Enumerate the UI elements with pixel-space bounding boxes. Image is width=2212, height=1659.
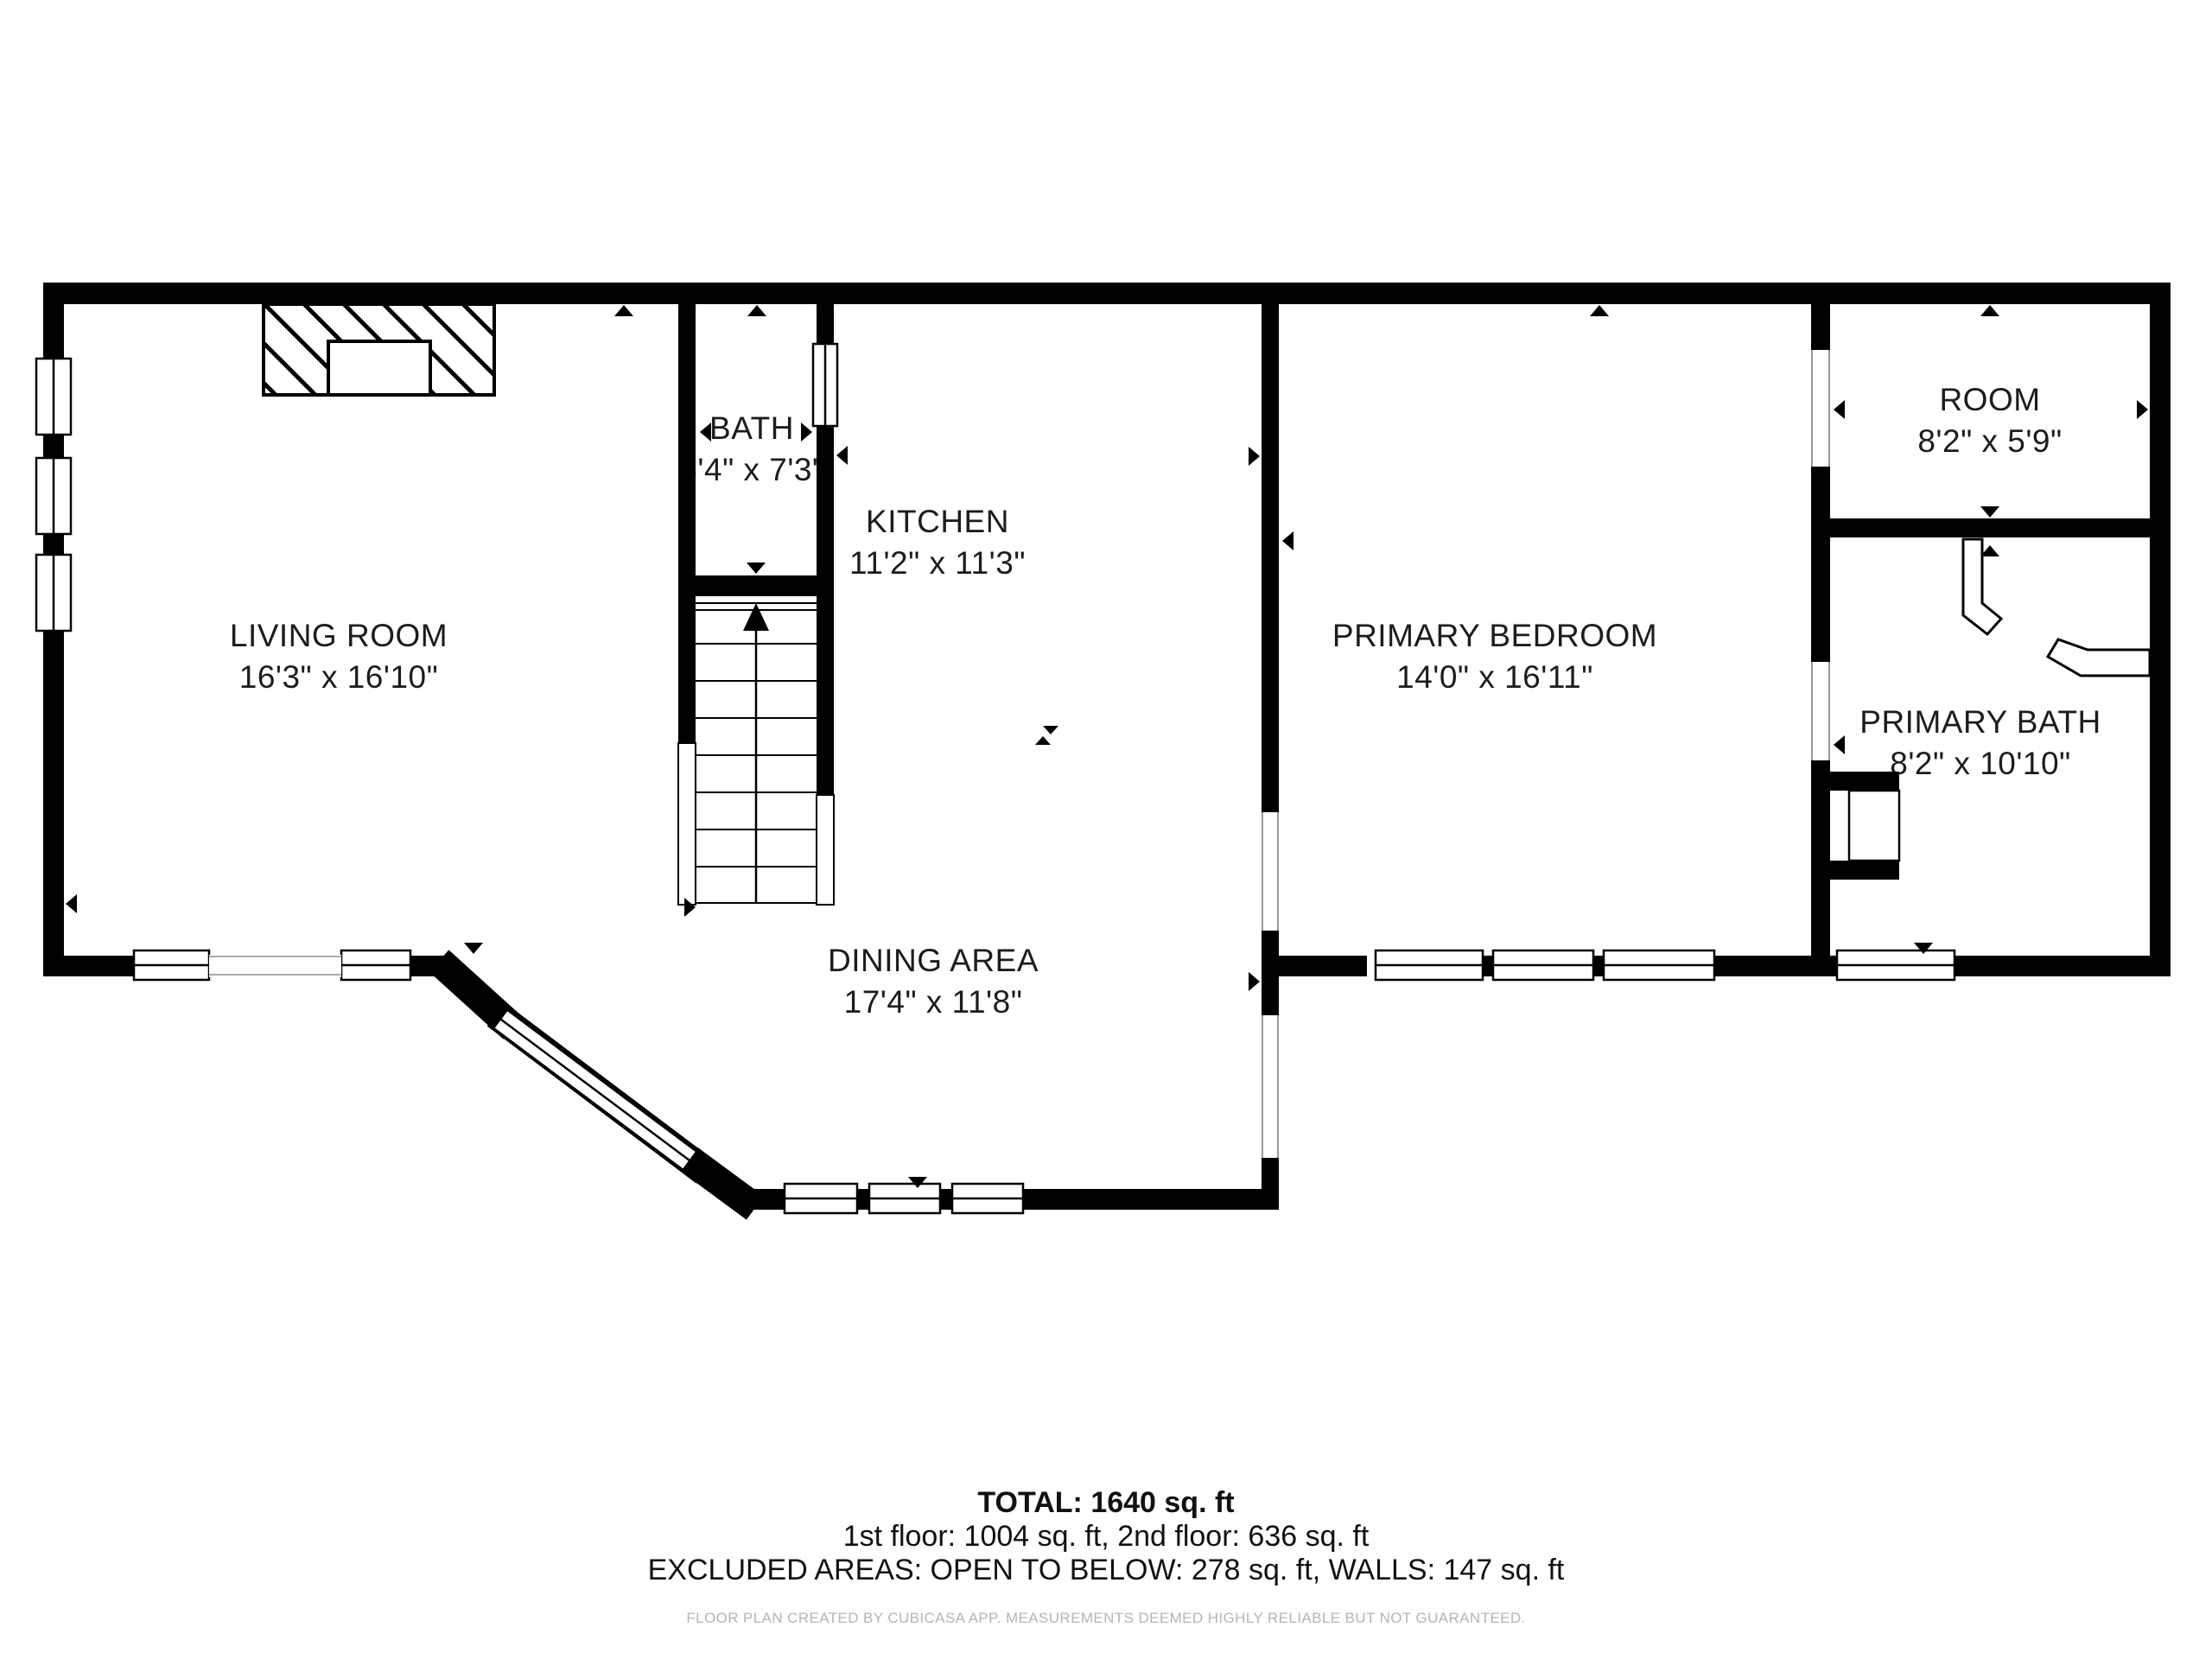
arrow-up-icon: [1980, 545, 1999, 556]
door-direction-markers: [66, 305, 2148, 1188]
arrow-right-icon: [1249, 447, 1260, 466]
arrow-down-icon: [464, 943, 483, 954]
arrow-down-icon: [1043, 726, 1058, 734]
floor-plan-canvas: LIVING ROOM 16'3" x 16'10" BATH 3'4" x 7…: [0, 0, 2212, 1659]
door-leaf-icon: [2048, 639, 2150, 676]
room-label-bath: BATH 3'4" x 7'3": [679, 408, 823, 491]
room-label-primary-bedroom: PRIMARY BEDROOM 14'0" x 16'11": [1332, 615, 1657, 698]
room-dims: 8'2" x 10'10": [1859, 743, 2101, 785]
room-dims: 11'2" x 11'3": [849, 543, 1026, 584]
bay-window-wall: [439, 961, 755, 1208]
arrow-down-icon: [747, 563, 766, 574]
fireplace: [264, 304, 494, 395]
window: [1837, 950, 1955, 980]
arrow-down-icon: [908, 1177, 927, 1188]
total-area-text: TOTAL: 1640 sq. ft: [648, 1486, 1565, 1520]
window: [952, 1184, 1023, 1213]
wall-opening: [1261, 812, 1280, 931]
arrow-up-icon: [1590, 305, 1609, 316]
room-dims: 17'4" x 11'8": [828, 982, 1039, 1023]
stair-up-arrow-icon: [743, 603, 769, 631]
staircase: [678, 603, 834, 905]
arrow-up-icon: [1980, 305, 1999, 316]
floor-plan-drawing: [0, 0, 2212, 1659]
room-name: DINING AREA: [828, 940, 1039, 982]
floor-areas-text: 1st floor: 1004 sq. ft, 2nd floor: 636 s…: [648, 1520, 1565, 1554]
walls-layer: [43, 283, 2171, 1210]
arrow-right-icon: [684, 898, 696, 917]
room-dims: 16'3" x 16'10": [230, 657, 448, 698]
wall-opening: [1810, 662, 1831, 760]
arrow-right-icon: [2137, 400, 2148, 419]
window: [1376, 950, 1483, 980]
shower-niche: [1849, 791, 1899, 861]
excluded-areas-text: EXCLUDED AREAS: OPEN TO BELOW: 278 sq. f…: [648, 1554, 1565, 1587]
room-label-living-room: LIVING ROOM 16'3" x 16'10": [230, 615, 448, 698]
room-dims: 3'4" x 7'3": [679, 449, 823, 491]
window: [36, 555, 71, 631]
window: [134, 950, 209, 980]
arrow-up-icon: [614, 305, 633, 316]
wall-openings-layer: [209, 350, 1899, 1158]
window: [1604, 950, 1714, 980]
arrow-up-icon: [1035, 736, 1051, 745]
disclaimer-text: FLOOR PLAN CREATED BY CUBICASA APP. MEAS…: [648, 1601, 1565, 1635]
room-name: ROOM: [1917, 379, 2062, 421]
arrow-left-icon: [1282, 531, 1294, 550]
room-label-primary-bath: PRIMARY BATH 8'2" x 10'10": [1859, 702, 2101, 785]
window: [341, 950, 410, 980]
arrow-up-icon: [747, 305, 766, 316]
summary-block: TOTAL: 1640 sq. ft 1st floor: 1004 sq. f…: [648, 1486, 1565, 1635]
window: [36, 359, 71, 435]
wall-opening: [1261, 1015, 1280, 1158]
window: [785, 1184, 857, 1213]
windows-layer: [36, 344, 1955, 1213]
room-name: BATH: [679, 408, 823, 449]
door-leaf-icon: [1963, 539, 2001, 634]
arrow-down-icon: [1914, 943, 1933, 954]
room-name: PRIMARY BATH: [1859, 702, 2101, 743]
room-label-kitchen: KITCHEN 11'2" x 11'3": [849, 501, 1026, 584]
window: [1493, 950, 1593, 980]
room-name: PRIMARY BEDROOM: [1332, 615, 1657, 657]
window: [869, 1184, 940, 1213]
room-dims: 14'0" x 16'11": [1332, 657, 1657, 698]
room-label-dining-area: DINING AREA 17'4" x 11'8": [828, 940, 1039, 1023]
arrow-left-icon: [836, 446, 848, 465]
arrow-down-icon: [1980, 506, 1999, 518]
door-swing-icons: [1963, 539, 2150, 676]
arrow-right-icon: [1249, 972, 1260, 991]
window: [36, 458, 71, 534]
arrow-left-icon: [1834, 400, 1845, 419]
room-label-room: ROOM 8'2" x 5'9": [1917, 379, 2062, 462]
wall-opening: [1810, 350, 1831, 467]
room-dims: 8'2" x 5'9": [1917, 421, 2062, 462]
arrow-left-icon: [1834, 735, 1845, 754]
wall-opening: [209, 955, 341, 977]
arrow-left-icon: [66, 894, 77, 913]
room-name: KITCHEN: [849, 501, 1026, 543]
room-name: LIVING ROOM: [230, 615, 448, 657]
